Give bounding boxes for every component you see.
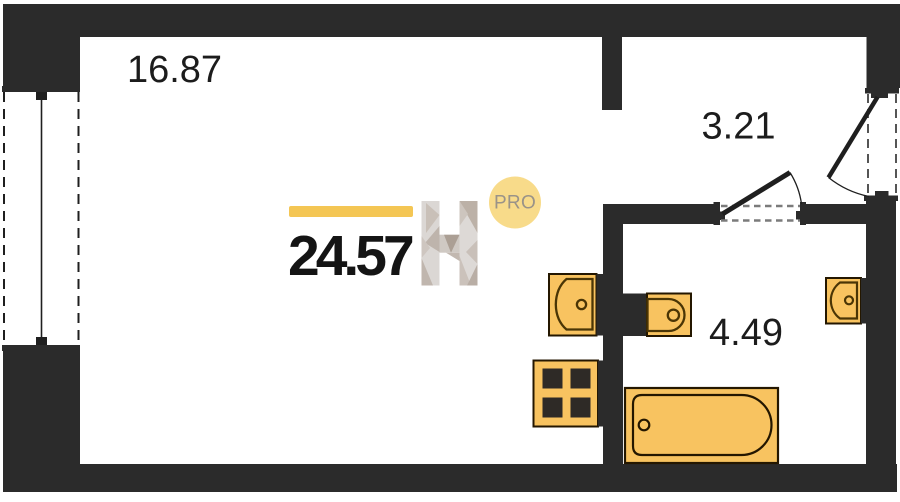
- svg-text:3.21: 3.21: [702, 106, 776, 148]
- svg-text:24.57: 24.57: [288, 224, 413, 288]
- svg-text:4.49: 4.49: [709, 312, 783, 354]
- svg-text:PRO: PRO: [494, 193, 536, 214]
- svg-text:16.87: 16.87: [127, 49, 222, 91]
